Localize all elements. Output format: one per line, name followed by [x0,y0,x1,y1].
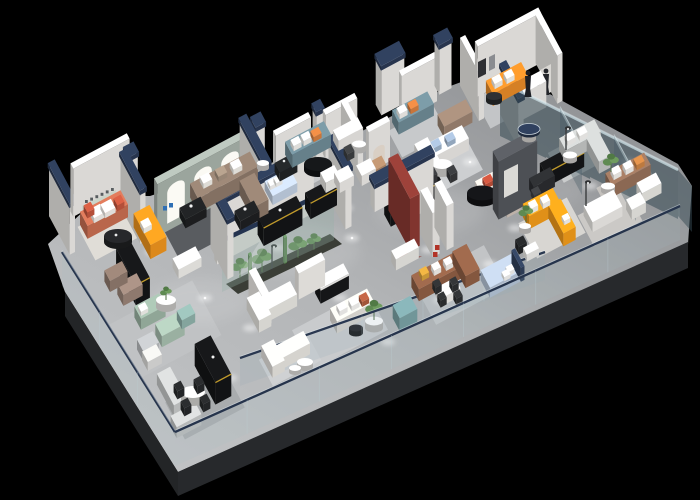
table-lamp [189,204,192,207]
table-decor [283,160,286,163]
side-table-white [257,160,269,166]
left-room-sign-text [101,193,104,196]
standing-person-head [526,71,531,76]
side-table-white [601,183,615,190]
red-logo-marks [433,252,438,257]
side-table-white [519,223,531,229]
coffee-table-black-oval [467,186,497,201]
potted-plant [607,154,615,160]
table-decor [115,234,118,237]
coffee-table-black [104,229,132,243]
console-decor [402,246,405,249]
coffee-table-dark [486,92,502,100]
side-table-white [352,141,366,148]
brand-logo-blue [163,206,167,211]
side-table-white [297,358,313,366]
wall-left-room-back [70,163,73,216]
table-lamp [243,207,246,210]
red-logo-marks [435,245,440,250]
left-room-sign-text [106,190,109,193]
showroom-render [0,0,700,500]
brand-logo-blue [169,203,173,208]
left-room-sign-text [90,198,93,201]
counter-decor [279,209,282,212]
side-table-white [563,152,577,159]
potted-plant [370,300,379,307]
table-flowers [163,287,169,291]
side-table-white [289,365,301,371]
spotlight-dot [351,237,354,240]
counter-decor [212,356,215,359]
terrarium-west-wall [227,220,233,279]
potted-plant [522,205,529,211]
arc-floor-lamp-bulb [567,128,569,130]
spotlight-dot [469,161,472,164]
left-room-sign-text [111,188,114,191]
spotlight [243,325,257,332]
table-navy-round [518,124,540,135]
showroom-floorplan-svg [0,0,700,500]
pillar-red-sign [447,203,454,251]
left-room-sign-text [85,200,88,203]
spotlight-dot [204,297,207,300]
floor-lamp-bulb [587,182,589,184]
mannequin-figure-head [544,69,549,74]
console-decor [329,273,332,276]
wall-top-room-back [475,41,478,96]
wall-top-room-east [557,53,562,104]
left-room-sign-text [95,195,98,198]
spotlight [583,183,597,190]
feature-wall-dark [493,151,499,220]
pilaster-top [439,42,451,95]
